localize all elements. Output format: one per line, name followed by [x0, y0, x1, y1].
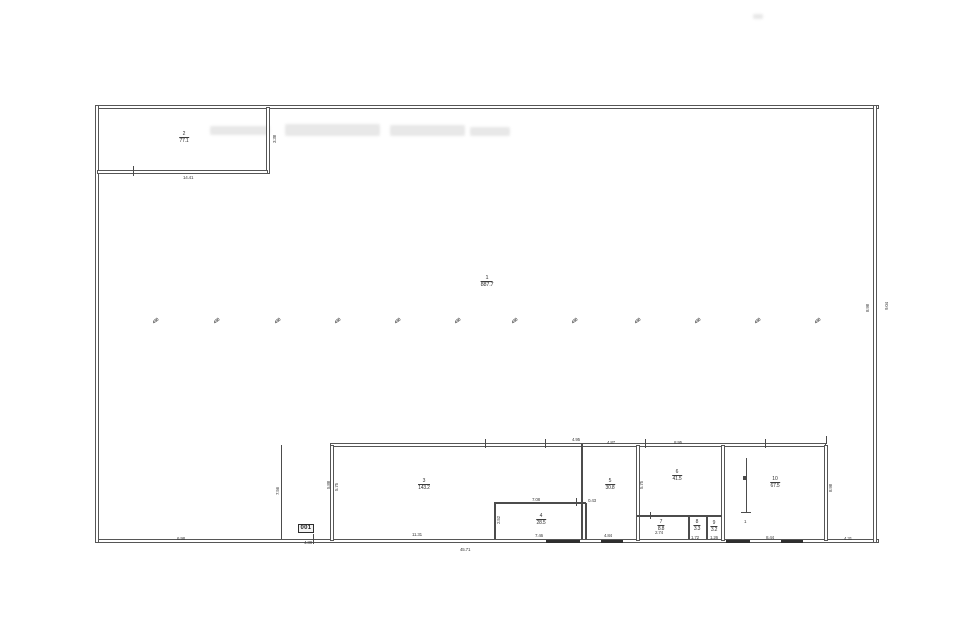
room-number: 9 [713, 521, 716, 526]
column-mark: 4.50 [693, 317, 701, 325]
column-mark: 4.50 [393, 317, 401, 325]
tick-mark [743, 476, 747, 480]
wall-single [746, 458, 747, 513]
wall-double [721, 445, 725, 541]
dimension-label: 3.38 [272, 135, 277, 143]
column-mark: 4.50 [151, 317, 159, 325]
room-area: 887.7 [481, 283, 494, 288]
room-area: 77.1 [180, 139, 189, 144]
dimension-label: 4.31 [844, 536, 852, 541]
room-5-label: 530.8 [605, 479, 615, 491]
room-area: 143.2 [418, 486, 430, 491]
dimension-label: 14.41 [183, 175, 193, 180]
column-mark: 4.50 [453, 317, 461, 325]
tick-mark [765, 439, 766, 448]
room-10-label: 1067.5 [770, 477, 780, 489]
wall-double [95, 539, 879, 543]
wall-double [636, 445, 640, 541]
room-area: 30.8 [606, 486, 615, 491]
column-mark: 4.50 [633, 317, 641, 325]
wall-single [581, 444, 583, 539]
column-mark: 4.50 [570, 317, 578, 325]
tick-mark [826, 436, 827, 444]
room-2-label: 277.1 [179, 132, 189, 144]
dimension-label: 1.26 [710, 535, 718, 540]
scan-smudge [285, 124, 380, 136]
scan-smudge [470, 127, 510, 136]
wall-double [95, 105, 879, 109]
room-number: 4 [540, 514, 543, 519]
wall-single [281, 445, 282, 539]
wall-single [741, 512, 751, 513]
room-number: 2 [183, 132, 186, 137]
dimension-label: 7.56 [275, 487, 280, 495]
room-number: 6 [676, 470, 679, 475]
room-3-label: 3143.2 [418, 479, 430, 491]
room-number: 7 [660, 520, 663, 525]
dimension-label: 4.38 [304, 540, 312, 545]
dimension-label: 5.75 [639, 481, 644, 489]
room-area: 3.3 [694, 527, 700, 532]
dimension-label: 8.98 [865, 304, 870, 312]
dimension-label: 5.75 [334, 483, 339, 491]
tick-mark [576, 498, 577, 506]
dimension-label: 8.95 [674, 440, 682, 445]
tick-mark [485, 439, 486, 448]
dimension-label: 45.71 [460, 547, 470, 552]
scan-smudge [390, 125, 465, 136]
room-number: 1 [485, 276, 488, 281]
dimension-label: 1.72 [691, 535, 699, 540]
room-6-label: 641.5 [672, 470, 682, 482]
room-9-label: 93.2 [710, 521, 717, 533]
room-area: 3.2 [711, 528, 717, 533]
dimension-label: 4.95 [572, 437, 580, 442]
room-number: 5 [609, 479, 612, 484]
door-band [781, 540, 803, 544]
room-7-label: 78.8 [657, 520, 664, 532]
dimension-label: 5.88 [326, 481, 331, 489]
dimension-label: 9.04 [884, 302, 889, 310]
room-area: 41.5 [673, 477, 682, 482]
tick-mark [650, 512, 651, 519]
column-mark: 4.50 [333, 317, 341, 325]
tick-mark [313, 534, 314, 544]
dimension-label: 8.44 [766, 535, 774, 540]
tick-mark [133, 166, 134, 176]
wall-single [585, 503, 587, 539]
wall-double [330, 443, 826, 447]
scan-smudge [210, 126, 270, 135]
wall-single [688, 516, 690, 539]
room-number: 10 [772, 477, 778, 482]
room-4-label: 428.5 [536, 514, 546, 526]
room-8-label: 83.3 [693, 520, 700, 532]
room-number: 8 [696, 520, 699, 525]
wall-double [824, 445, 828, 541]
column-mark: 4.50 [273, 317, 281, 325]
room-area: 67.5 [771, 484, 780, 489]
wall-double [330, 445, 334, 541]
column-mark: 4.50 [753, 317, 761, 325]
room-number: 3 [423, 479, 426, 484]
column-mark: 4.50 [212, 317, 220, 325]
floor-plan-canvas: 4.504.504.504.504.504.504.504.504.504.50… [0, 0, 960, 640]
door-band [601, 540, 623, 544]
door-number-001: 001 [298, 524, 314, 533]
dimension-label: 8.98 [828, 484, 833, 492]
wall-single [494, 502, 586, 504]
dimension-label: 4.84 [604, 533, 612, 538]
wall-double [97, 170, 268, 174]
room-area: 28.5 [537, 521, 546, 526]
wall-single [706, 516, 708, 539]
dimension-label: 2.52 [496, 516, 501, 524]
door-band [726, 540, 750, 544]
door-band [546, 540, 580, 544]
dimension-label: 1 [744, 519, 746, 524]
dimension-label: 7.46 [535, 533, 543, 538]
room-1-hall-label: 1887.7 [481, 276, 494, 288]
dimension-label: 7.08 [532, 497, 540, 502]
room-area: 8.8 [658, 527, 664, 532]
dimension-label: 4.87 [607, 440, 615, 445]
tick-mark [545, 439, 546, 448]
column-mark: 4.50 [813, 317, 821, 325]
dimension-label: 0.43 [588, 498, 596, 503]
tick-mark [645, 439, 646, 448]
wall-double [873, 105, 877, 543]
wall-double [266, 107, 270, 174]
dimension-label: 6.98 [177, 536, 185, 541]
scan-smudge [753, 14, 763, 19]
dimension-label: 11.31 [412, 532, 422, 537]
column-mark: 4.50 [510, 317, 518, 325]
